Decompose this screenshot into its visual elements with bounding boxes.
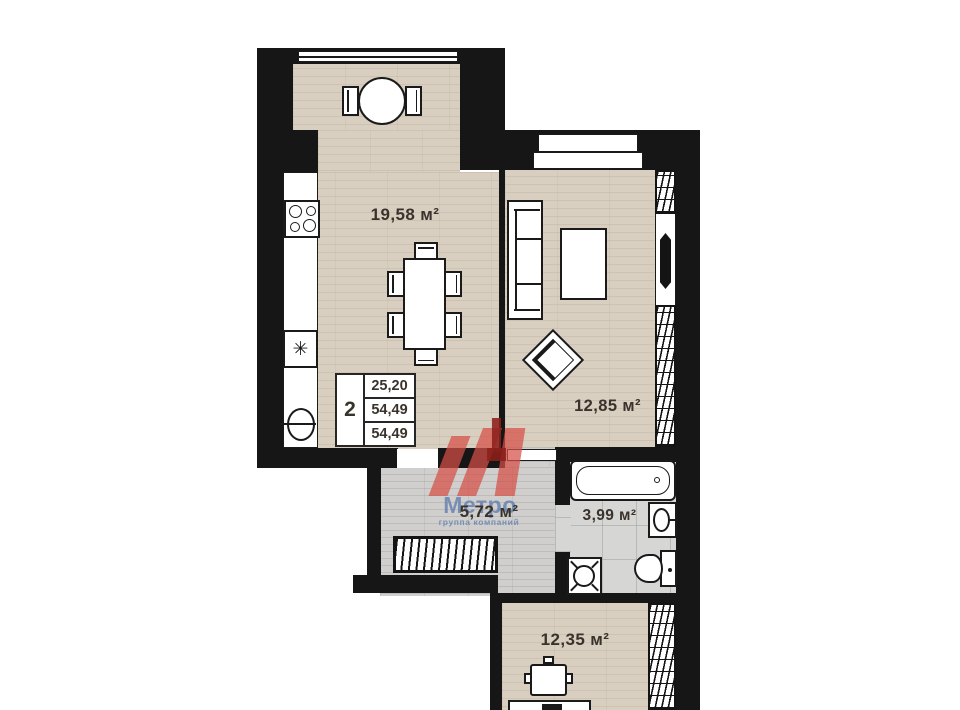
stove-burner — [289, 205, 302, 218]
chair-back-line — [456, 316, 458, 334]
bedroom-window-sill — [538, 134, 638, 152]
side-window — [655, 212, 676, 307]
area-values-column: 25,20 54,49 54,49 — [365, 375, 414, 445]
chair-back-line — [418, 247, 434, 249]
hallway-area-label: 5,72 м² — [434, 502, 544, 522]
kitchen-living-area-label: 19,58 м² — [340, 205, 470, 225]
pot-icon — [530, 664, 567, 696]
stove-burner — [306, 206, 316, 216]
wall-bay-left — [257, 48, 293, 132]
dining-chair-bottom — [414, 348, 438, 366]
bedroom-area-label: 12,85 м² — [545, 397, 670, 416]
coffee-table — [560, 228, 607, 300]
kitchen-living-floor-upper — [318, 130, 460, 174]
bedroom-window — [533, 152, 643, 169]
window-handle-icon — [660, 233, 671, 289]
vent-shaft-hatch-mid — [655, 305, 676, 447]
sofa-cushion-line — [516, 283, 541, 285]
stove — [284, 200, 320, 238]
cutoff-fixture — [508, 700, 591, 710]
vent-shaft-hatch-top — [655, 170, 676, 214]
cutoff-fixture-detail — [542, 704, 562, 710]
sofa-backrest — [515, 209, 517, 311]
round-table — [358, 77, 406, 125]
bay-window — [298, 51, 458, 62]
sofa-cushion-line — [516, 238, 541, 240]
vent-symbol: ✳ — [293, 338, 309, 361]
dining-chair-right-2 — [444, 312, 462, 338]
washer-corner-line — [591, 584, 599, 592]
bathtub — [570, 460, 676, 501]
apartment-info-box: 2 25,20 54,49 54,49 — [335, 373, 416, 447]
total-area-value: 54,49 — [365, 399, 414, 423]
wall-top-left-pier — [257, 130, 318, 174]
wall-bay-right-block — [460, 48, 505, 170]
vent-shaft-hatch-bottom — [648, 603, 676, 710]
stove-burner — [303, 219, 316, 232]
wall-bath-left-upper — [555, 447, 570, 505]
wall-right — [676, 130, 700, 710]
dining-chair-right-1 — [444, 271, 462, 297]
sink-tap-line — [669, 519, 678, 521]
washer-corner-line — [570, 584, 578, 592]
chair-back-line — [456, 275, 458, 293]
total-area-with-balcony-value: 54,49 — [365, 423, 414, 445]
wall-bottom-mid — [438, 448, 505, 468]
wall-room-below-left — [490, 593, 502, 710]
chair-back-line — [416, 90, 418, 112]
bay-chair-right — [405, 86, 422, 116]
floor-plan: ✳ — [0, 0, 960, 710]
sofa-armrest-bottom — [514, 309, 540, 311]
sofa — [507, 200, 543, 320]
chair-back-line — [392, 275, 394, 293]
wall-left — [257, 172, 283, 460]
armchair-seat — [532, 339, 574, 381]
bathtub-drain — [654, 477, 660, 483]
chair-back-line — [392, 316, 394, 334]
chair-back-line — [418, 360, 434, 362]
bay-chair-left — [342, 86, 359, 116]
wall-hall-left — [367, 453, 381, 577]
kitchen-vent-box: ✳ — [283, 330, 318, 368]
sofa-armrest-top — [514, 209, 540, 211]
stove-burner — [290, 222, 300, 232]
toilet-button — [668, 568, 672, 572]
rooms-count: 2 — [337, 375, 365, 445]
toilet-bowl — [634, 554, 663, 583]
washer-corner-line — [570, 561, 578, 569]
door-threshold-bedroom — [507, 449, 557, 461]
door-opening-living-hall — [397, 449, 438, 468]
wardrobe-hatch — [393, 536, 498, 573]
wall-partition-living-bedroom — [499, 170, 505, 448]
bay-window-glass-line — [299, 56, 457, 58]
dining-table — [403, 258, 446, 350]
washer-corner-line — [591, 561, 599, 569]
kitchen-sink-tap-line — [280, 423, 316, 425]
bathroom-area-label: 3,99 м² — [562, 507, 657, 525]
room-below-floor — [502, 602, 648, 710]
washing-machine — [567, 557, 602, 595]
chair-back-line — [347, 90, 349, 112]
living-area-value: 25,20 — [365, 375, 414, 399]
room-below-area-label: 12,35 м² — [515, 630, 635, 650]
pot-lid-knob — [543, 656, 554, 664]
wall-hall-bottom — [353, 575, 498, 593]
